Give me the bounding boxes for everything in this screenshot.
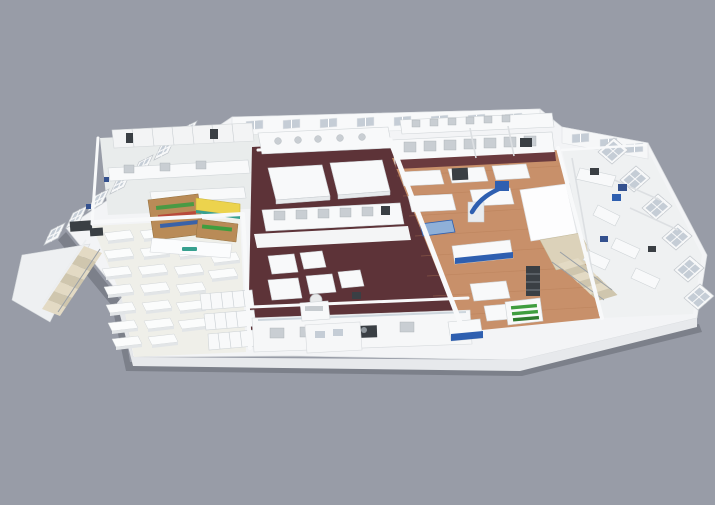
service-kiosk bbox=[148, 194, 240, 258]
window bbox=[572, 133, 589, 143]
work-bench bbox=[492, 164, 530, 180]
window bbox=[357, 117, 374, 127]
lab-equipment-dark bbox=[648, 246, 656, 252]
microscope-dark bbox=[590, 168, 599, 175]
lab-equipment-blue bbox=[612, 194, 621, 201]
window bbox=[320, 118, 337, 128]
island-bench bbox=[330, 160, 390, 195]
oven-dark bbox=[210, 129, 218, 139]
analyzer-dark bbox=[520, 138, 532, 147]
fridge-dark bbox=[126, 133, 133, 143]
wing-equipment-blue bbox=[618, 184, 627, 191]
espresso-machines-dark bbox=[452, 168, 469, 181]
wall-sign-blue bbox=[104, 177, 109, 182]
window bbox=[283, 119, 300, 129]
display-case-green bbox=[505, 298, 543, 325]
wall-sign-blue bbox=[86, 204, 91, 209]
kiosk-logo bbox=[182, 247, 197, 251]
front-room-block bbox=[305, 322, 362, 353]
lab-equipment-blue bbox=[600, 236, 608, 242]
island-bench bbox=[268, 165, 330, 200]
isometric-floorplan-render bbox=[0, 0, 715, 505]
storage-rack-dark bbox=[526, 266, 540, 296]
work-table bbox=[470, 281, 510, 301]
